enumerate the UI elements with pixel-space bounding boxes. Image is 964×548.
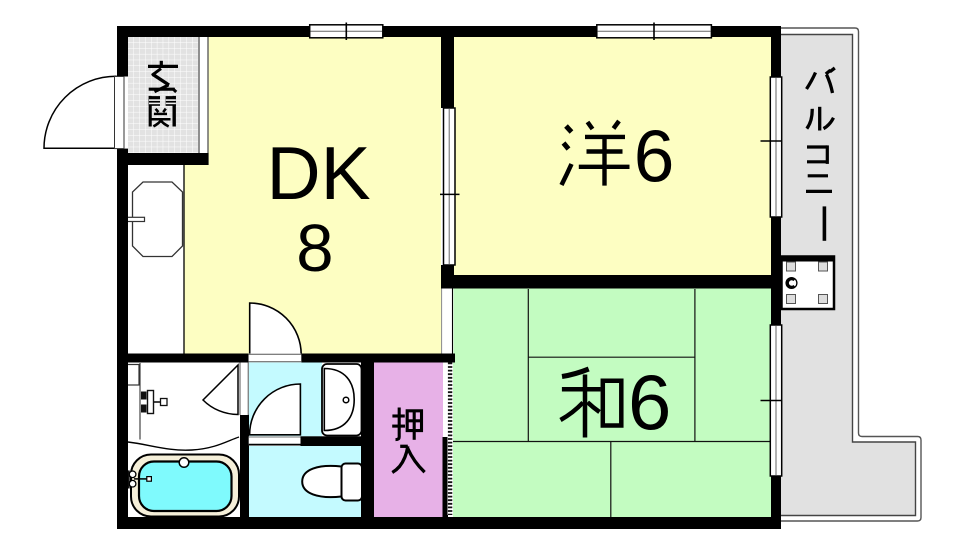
svg-text:DK: DK [267,131,371,215]
svg-text:6: 6 [634,117,675,198]
svg-text:6: 6 [628,358,671,446]
svg-text:8: 8 [296,211,333,286]
